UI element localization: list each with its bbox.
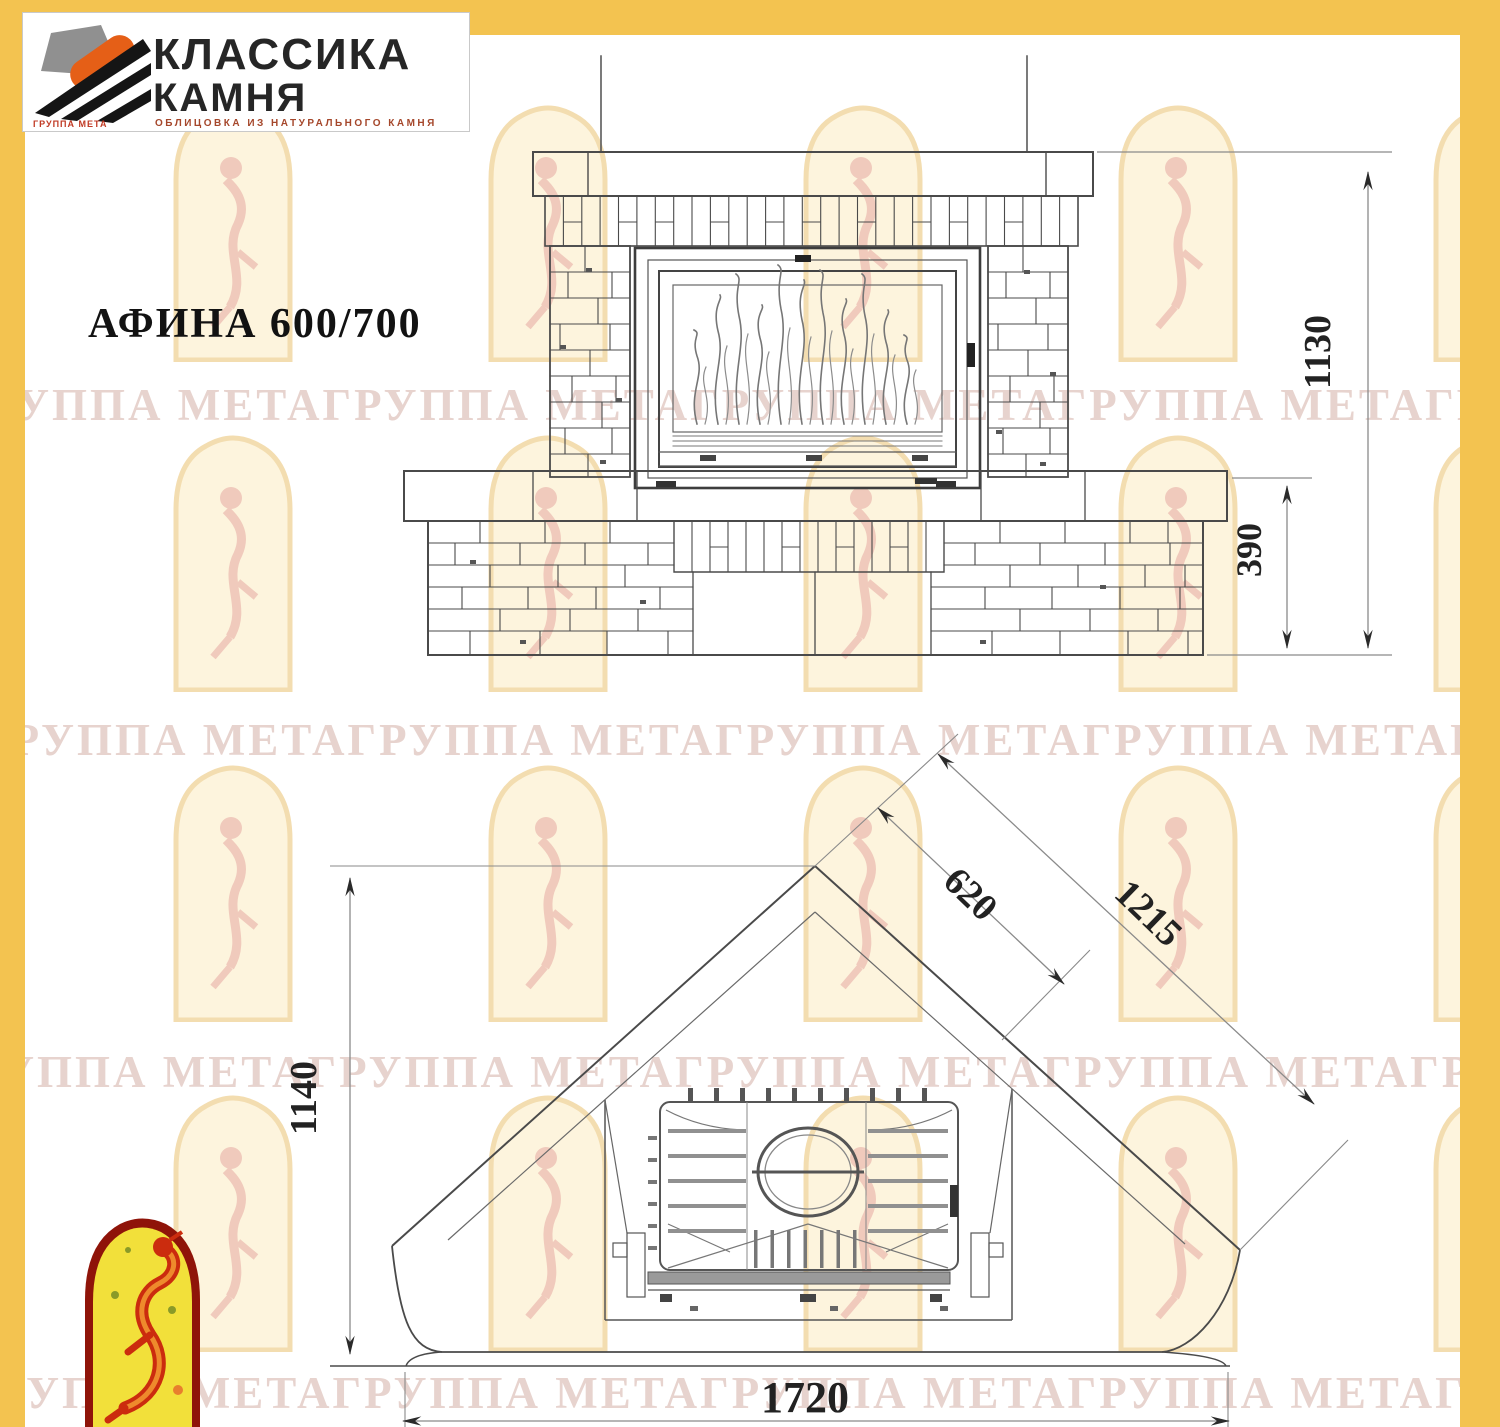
page-border-left <box>0 0 25 1427</box>
door-latch <box>795 255 811 262</box>
vent-slot <box>912 455 928 461</box>
brand-tagline: ОБЛИЦОВКА ИЗ НАТУРАЛЬНОГО КАМНЯ <box>155 118 437 129</box>
vent-slot <box>700 455 716 461</box>
vent-slot <box>806 455 822 461</box>
dim-label-depth: 1140 <box>283 1061 325 1135</box>
insert-front-band <box>648 1272 950 1284</box>
watermark-row: ГРУППА МЕТАГРУППА МЕТАГРУППА МЕТАГРУППА … <box>0 1368 1500 1418</box>
dim-label-front-width: 1720 <box>761 1373 849 1422</box>
insert-foot <box>936 481 956 487</box>
meta-group-emblem <box>85 1213 200 1427</box>
dim-label-total-height: 1130 <box>1297 315 1339 389</box>
plan-front-outer <box>330 1352 1230 1366</box>
company-logo: КЛАССИКА КАМНЯ ОБЛИЦОВКА ИЗ НАТУРАЛЬНОГО… <box>22 12 470 132</box>
grate-lines <box>673 436 942 446</box>
company-logo-graphic: КЛАССИКА КАМНЯ ОБЛИЦОВКА ИЗ НАТУРАЛЬНОГО… <box>23 13 469 131</box>
spec-sheet-page: ГРУППА МЕТАГРУППА МЕТАГРУППА МЕТАГРУППА … <box>0 0 1500 1427</box>
brand-sub-caption: ГРУППА МЕТА <box>33 119 107 129</box>
left-bracket <box>627 1233 645 1297</box>
door-handle <box>967 343 975 367</box>
brand-name-line2: КАМНЯ <box>153 76 307 120</box>
insert-foot <box>656 481 676 487</box>
fireplace-technical-drawing: ГРУППА МЕТАГРУППА МЕТАГРУППА МЕТАГРУППА … <box>0 0 1500 1427</box>
model-title: АФИНА 600/700 <box>88 300 422 348</box>
brand-name-line1: КЛАССИКА <box>153 30 411 79</box>
watermark-row: ГРУППА МЕТАГРУППА МЕТАГРУППА МЕТАГРУППА … <box>0 1047 1500 1097</box>
page-border-right <box>1460 0 1500 1427</box>
watermark-row: ГРУППА МЕТАГРУППА МЕТАГРУППА МЕТАГРУППА … <box>0 715 1500 765</box>
watermark-row: ГРУППА МЕТАГРУППА МЕТАГРУППА МЕТАГРУППА … <box>0 380 1500 430</box>
right-bracket <box>971 1233 989 1297</box>
dim-label-base-height: 390 <box>1229 523 1269 577</box>
